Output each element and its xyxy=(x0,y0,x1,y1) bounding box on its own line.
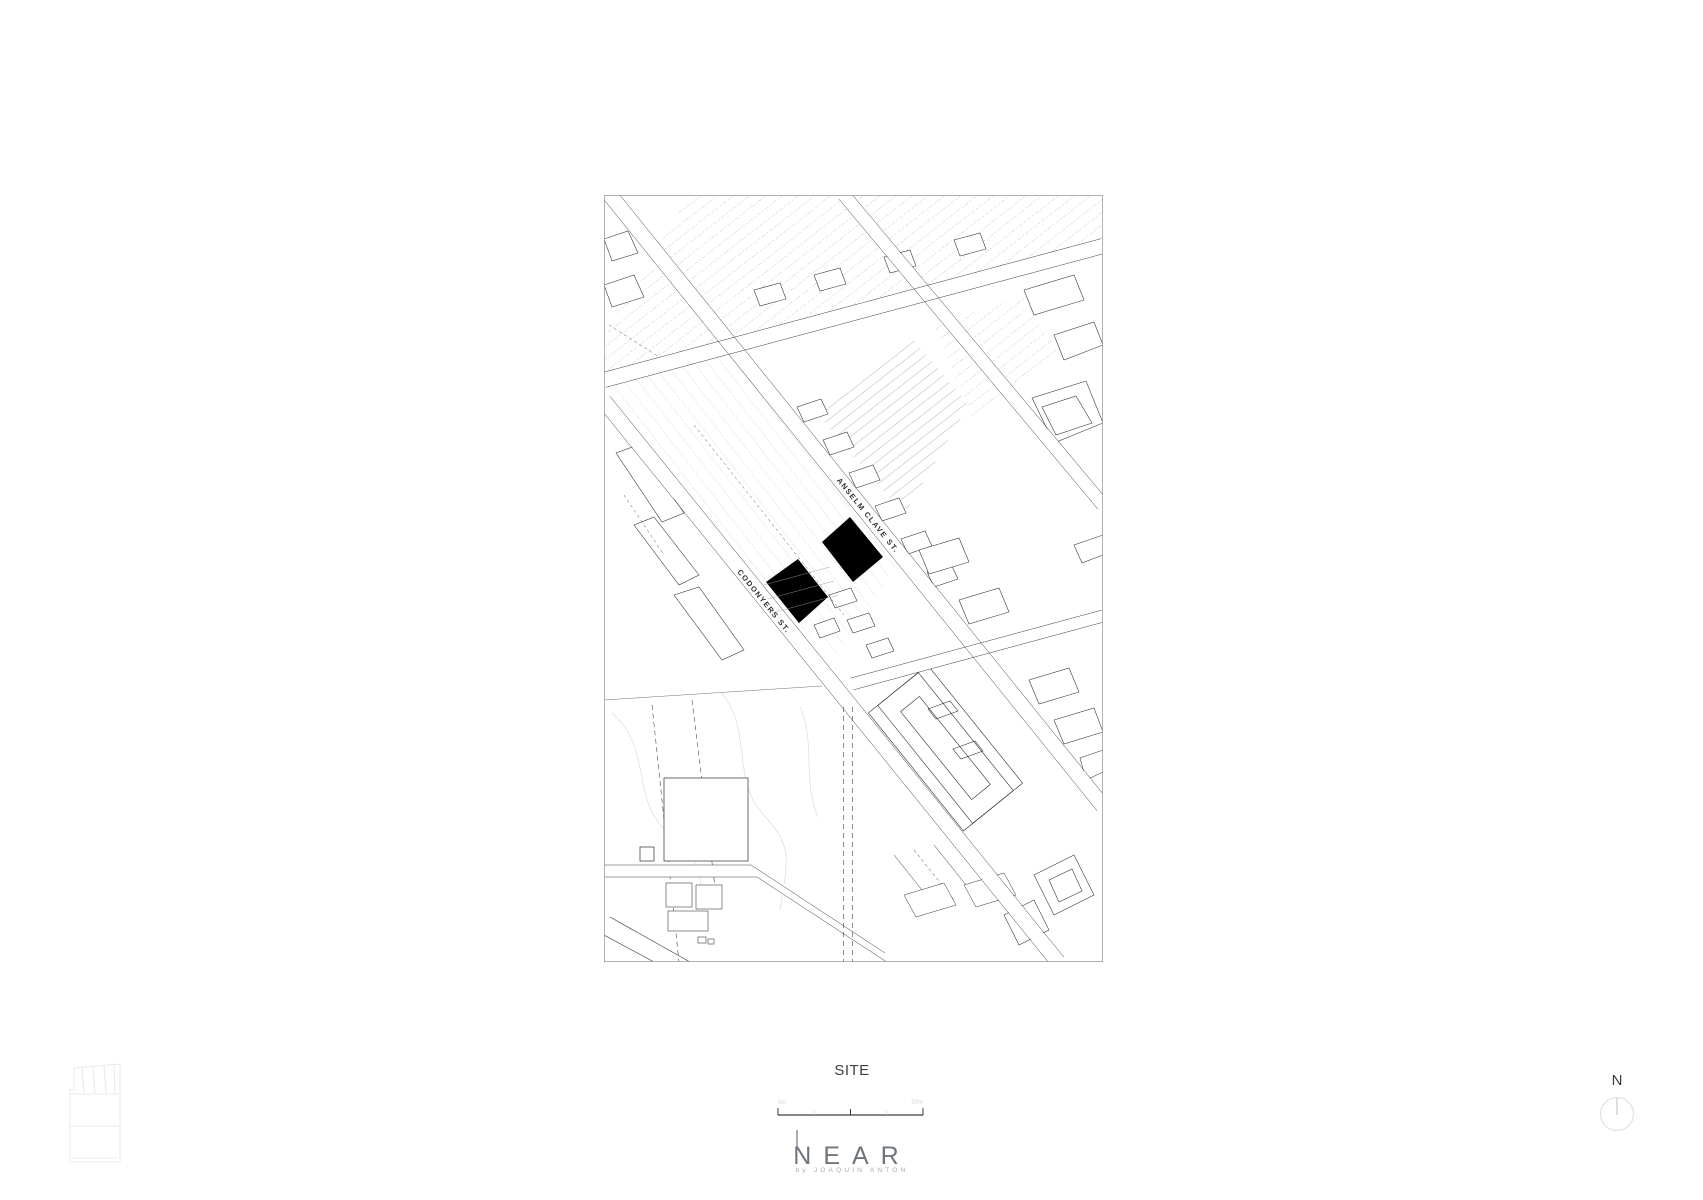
logo-byline: by JOAQUIN ANTON xyxy=(732,1167,972,1174)
north-label: N xyxy=(1606,1072,1628,1089)
building-stack-icon xyxy=(62,1058,128,1170)
scale-label-left: 0m xyxy=(778,1100,786,1106)
north-arrow-icon xyxy=(1597,1094,1637,1134)
drawing-caption: SITE xyxy=(772,1062,932,1079)
site-plan-map: ANSELM CLAVE ST. CODONYERS ST. xyxy=(604,195,1103,962)
scale-bar: 0m 50m xyxy=(770,1093,931,1125)
scale-label-right: 50m xyxy=(911,1100,923,1106)
site-plan-drawing: ANSELM CLAVE ST. CODONYERS ST. xyxy=(604,195,1103,962)
logo-wordmark: NEAR xyxy=(793,1142,910,1170)
near-logo: NEAR xyxy=(788,1126,916,1172)
